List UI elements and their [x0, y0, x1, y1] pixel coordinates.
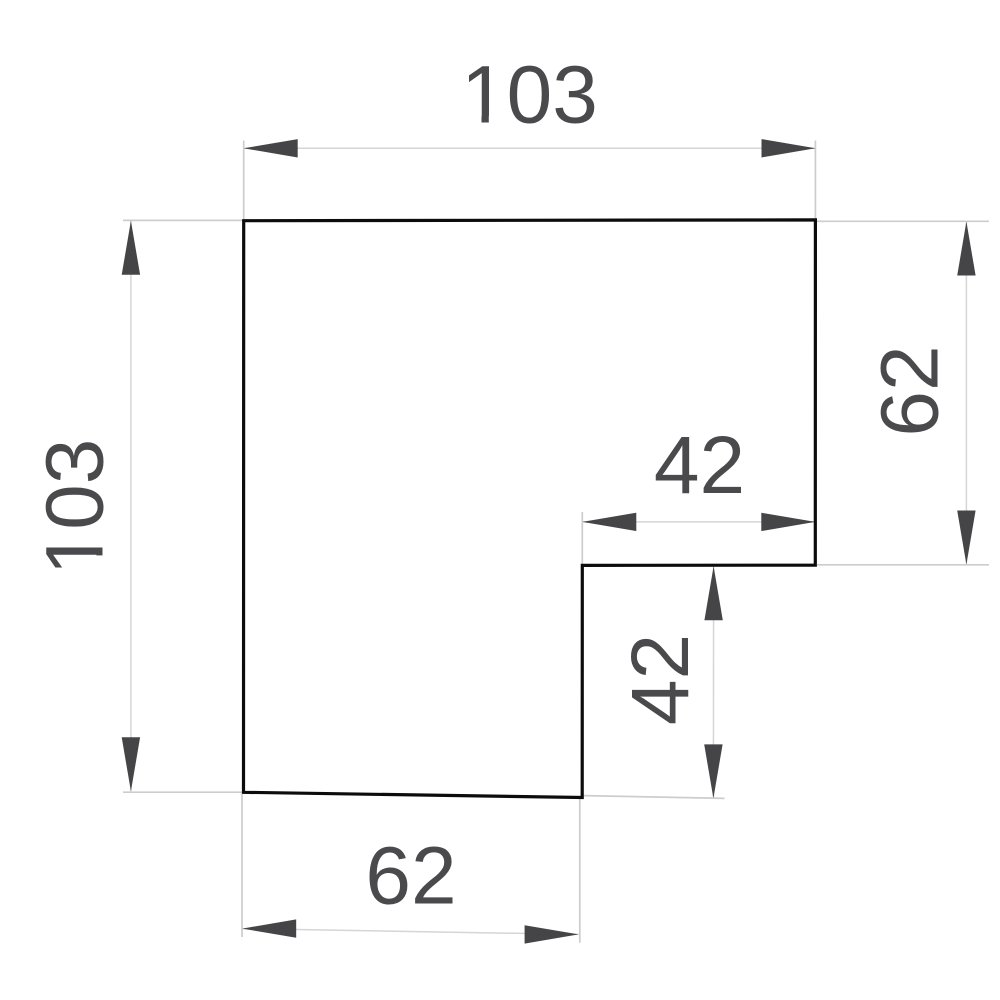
- svg-text:42: 42: [654, 420, 745, 511]
- svg-text:42: 42: [615, 634, 706, 725]
- svg-text:62: 62: [365, 831, 456, 922]
- svg-text:103: 103: [461, 50, 598, 141]
- svg-text:103: 103: [30, 439, 121, 576]
- svg-text:62: 62: [864, 345, 955, 436]
